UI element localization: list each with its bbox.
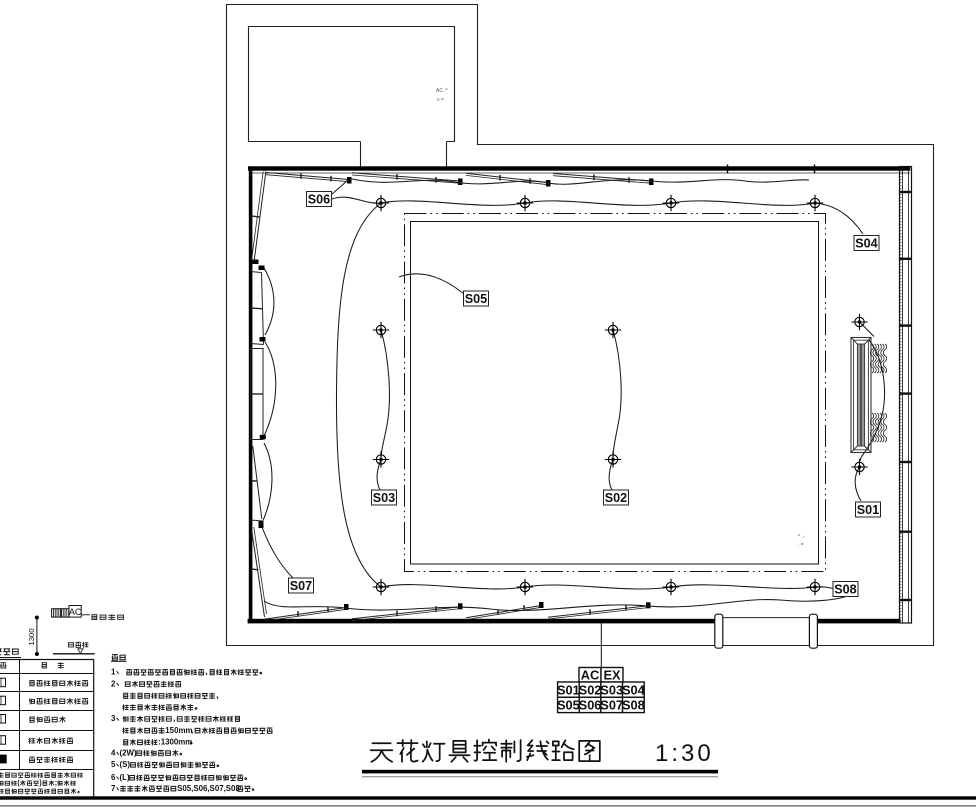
svg-text::1300mm: :1300mm xyxy=(158,738,192,747)
svg-text:2: 2 xyxy=(111,679,116,688)
svg-text:S08: S08 xyxy=(834,583,856,597)
svg-text:5: 5 xyxy=(111,760,116,769)
svg-text:S02: S02 xyxy=(579,682,602,697)
svg-text:(L): (L) xyxy=(120,773,130,782)
svg-text:. =: . = xyxy=(798,542,804,548)
svg-text:1: 1 xyxy=(111,668,116,677)
svg-text:S07: S07 xyxy=(600,698,623,713)
svg-text:): ) xyxy=(39,780,41,787)
svg-text:;: ; xyxy=(55,780,57,787)
svg-text:S01: S01 xyxy=(857,503,879,517)
svg-text:1:30: 1:30 xyxy=(655,740,714,767)
svg-text:(: ( xyxy=(17,780,20,787)
svg-text:S08: S08 xyxy=(622,698,645,713)
svg-text:AC: AC xyxy=(69,607,82,617)
svg-text::* .-: :* .- xyxy=(797,534,805,540)
svg-text:S01: S01 xyxy=(557,682,580,697)
svg-text:S05: S05 xyxy=(557,698,580,713)
svg-text:EX: EX xyxy=(603,668,621,683)
svg-text:S05: S05 xyxy=(465,292,487,306)
svg-text:S06: S06 xyxy=(579,698,602,713)
svg-text:AC: AC xyxy=(581,668,599,683)
svg-text:(S): (S) xyxy=(120,760,131,769)
svg-text:S05,S06,S07,S08: S05,S06,S07,S08 xyxy=(177,784,240,793)
svg-text:S07: S07 xyxy=(290,579,312,593)
svg-text:4: 4 xyxy=(111,748,116,757)
svg-text:v =: v = xyxy=(437,97,444,103)
svg-text:150mm: 150mm xyxy=(165,726,192,735)
svg-text:AC :*: AC :* xyxy=(436,88,448,94)
svg-text:S03: S03 xyxy=(373,491,395,505)
svg-text:S03: S03 xyxy=(600,682,623,697)
svg-text:S02: S02 xyxy=(605,491,627,505)
svg-text:S04: S04 xyxy=(622,682,646,697)
svg-text:1300: 1300 xyxy=(27,628,36,645)
svg-text:S04: S04 xyxy=(855,237,877,251)
svg-text:S06: S06 xyxy=(308,193,330,207)
svg-text:6: 6 xyxy=(111,773,116,782)
svg-text:3: 3 xyxy=(111,714,116,723)
svg-text:(2W): (2W) xyxy=(120,748,137,757)
svg-text:7: 7 xyxy=(111,784,116,793)
